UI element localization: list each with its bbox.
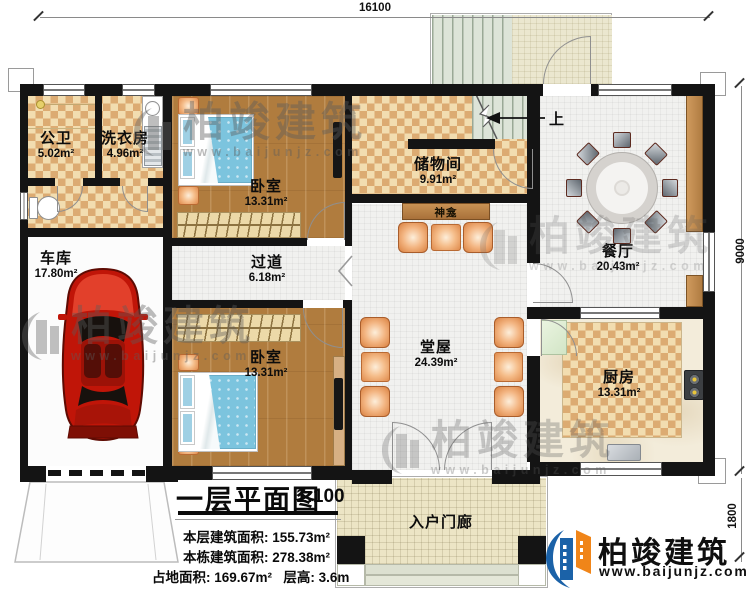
porch-dimension-line bbox=[741, 478, 742, 562]
right-dimension-label: 9000 bbox=[735, 226, 747, 276]
shower-head-icon bbox=[36, 100, 45, 109]
armchair bbox=[494, 317, 524, 348]
wall-kitchen-west bbox=[527, 356, 540, 462]
stove bbox=[684, 370, 704, 400]
laundry-sink bbox=[145, 101, 160, 116]
wall-storage-south bbox=[352, 194, 540, 203]
wall-bathroom-south bbox=[28, 178, 55, 186]
floor-plan-canvas: 16100 9000 1800 bbox=[0, 0, 750, 597]
room-label-dining: 餐厅 20.43m² bbox=[597, 243, 640, 274]
wall-hallway-south bbox=[172, 300, 303, 308]
shower-line bbox=[45, 104, 95, 105]
window bbox=[20, 192, 28, 220]
wardrobe bbox=[177, 212, 301, 238]
nightstand bbox=[178, 97, 199, 115]
room-label-storage: 储物间 9.91m² bbox=[414, 156, 462, 187]
dining-cabinet bbox=[686, 275, 703, 307]
wardrobe bbox=[177, 314, 301, 342]
stat-building-area: 本栋建筑面积: 278.38m² bbox=[183, 546, 330, 566]
stat-footprint-and-height: 占地面积: 169.67m² 层高: 3.6m bbox=[152, 566, 349, 586]
dimension-tick bbox=[703, 11, 714, 22]
wall-bedroom-top-south bbox=[172, 238, 307, 246]
burner bbox=[689, 374, 700, 385]
window bbox=[43, 84, 85, 96]
armchair bbox=[360, 386, 390, 417]
landing-door-opening bbox=[543, 84, 591, 96]
pillow bbox=[181, 150, 194, 178]
table-center bbox=[614, 180, 630, 196]
stairs-up-label: 上 bbox=[549, 108, 564, 129]
wall-stairhall-south bbox=[408, 139, 495, 149]
garage-door-dashed bbox=[48, 470, 146, 476]
stat-floor-area: 本层建筑面积: 155.73m² bbox=[183, 526, 330, 546]
room-label-porch: 入户门廊 bbox=[409, 514, 473, 532]
wall-bedroom-east bbox=[345, 96, 352, 246]
tv bbox=[334, 378, 343, 430]
bathroom-divider-line bbox=[28, 128, 95, 129]
wall-garage-north bbox=[20, 228, 172, 237]
tea-table bbox=[361, 352, 390, 382]
armchair bbox=[360, 317, 390, 348]
burner bbox=[689, 387, 700, 398]
room-label-hallway: 过道 6.18m² bbox=[249, 254, 285, 285]
title-underline-thick bbox=[178, 511, 338, 515]
porch-column bbox=[337, 536, 365, 564]
company-website: www.baijunjz.com bbox=[599, 563, 749, 579]
window bbox=[210, 84, 312, 96]
dining-chair bbox=[662, 179, 678, 197]
wall-bathroom-south bbox=[83, 178, 120, 186]
porch-step bbox=[365, 564, 520, 575]
pillow bbox=[181, 412, 194, 444]
dining-chair bbox=[613, 228, 631, 244]
title-underline-thin bbox=[175, 519, 341, 520]
dimension-tick bbox=[734, 552, 745, 563]
wall-garage-bottom-left bbox=[20, 466, 46, 482]
window bbox=[580, 307, 660, 319]
room-label-garage: 车库 17.80m² bbox=[35, 250, 78, 281]
dimension-tick bbox=[734, 78, 745, 89]
window bbox=[703, 232, 715, 292]
top-dimension-label: 16100 bbox=[345, 2, 405, 14]
armchair bbox=[463, 222, 493, 253]
tv bbox=[333, 122, 342, 178]
driveway bbox=[15, 482, 178, 562]
dining-chair bbox=[566, 179, 582, 197]
room-label-shrine: 神龛 bbox=[402, 205, 490, 220]
dining-cabinet bbox=[686, 92, 703, 232]
pillow bbox=[181, 118, 194, 146]
room-label-bedroom-top: 卧室 13.31m² bbox=[245, 178, 288, 209]
porch-step-side bbox=[518, 564, 546, 586]
nightstand bbox=[178, 186, 199, 205]
nightstand bbox=[178, 354, 199, 371]
dimension-tick bbox=[33, 11, 44, 22]
room-label-laundry: 洗衣房 4.96m² bbox=[101, 130, 149, 161]
porch-column bbox=[518, 536, 546, 564]
company-logo-icon bbox=[546, 524, 594, 595]
plan-scale: 1:100 bbox=[296, 486, 345, 508]
dimension-tick bbox=[734, 466, 745, 477]
wall-hall-bottom-left bbox=[352, 470, 392, 484]
top-dimension-line bbox=[40, 17, 710, 18]
room-label-bathroom: 公卫 5.02m² bbox=[38, 130, 74, 161]
dining-chair bbox=[613, 132, 631, 148]
pillow bbox=[181, 376, 194, 408]
tea-table bbox=[494, 352, 523, 382]
tea-table bbox=[431, 224, 461, 251]
wall-hallway-south bbox=[343, 300, 352, 308]
interior-stairs bbox=[472, 96, 527, 139]
wall-garage-east bbox=[163, 96, 172, 466]
wall-bedroom-bottom-east bbox=[345, 308, 352, 466]
exterior-stairs bbox=[432, 15, 512, 84]
window bbox=[598, 84, 672, 96]
armchair bbox=[494, 386, 524, 417]
porch-step bbox=[365, 575, 520, 586]
kitchen-sink bbox=[607, 444, 641, 461]
wall-exterior-left bbox=[20, 84, 28, 482]
armchair bbox=[398, 222, 428, 253]
right-dimension-line bbox=[741, 86, 742, 474]
room-label-kitchen: 厨房 13.31m² bbox=[598, 369, 641, 400]
room-label-bedroom-bottom: 卧室 13.31m² bbox=[245, 349, 288, 380]
window bbox=[580, 462, 662, 476]
window bbox=[122, 84, 155, 96]
room-label-main-hall: 堂屋 24.39m² bbox=[415, 339, 458, 370]
